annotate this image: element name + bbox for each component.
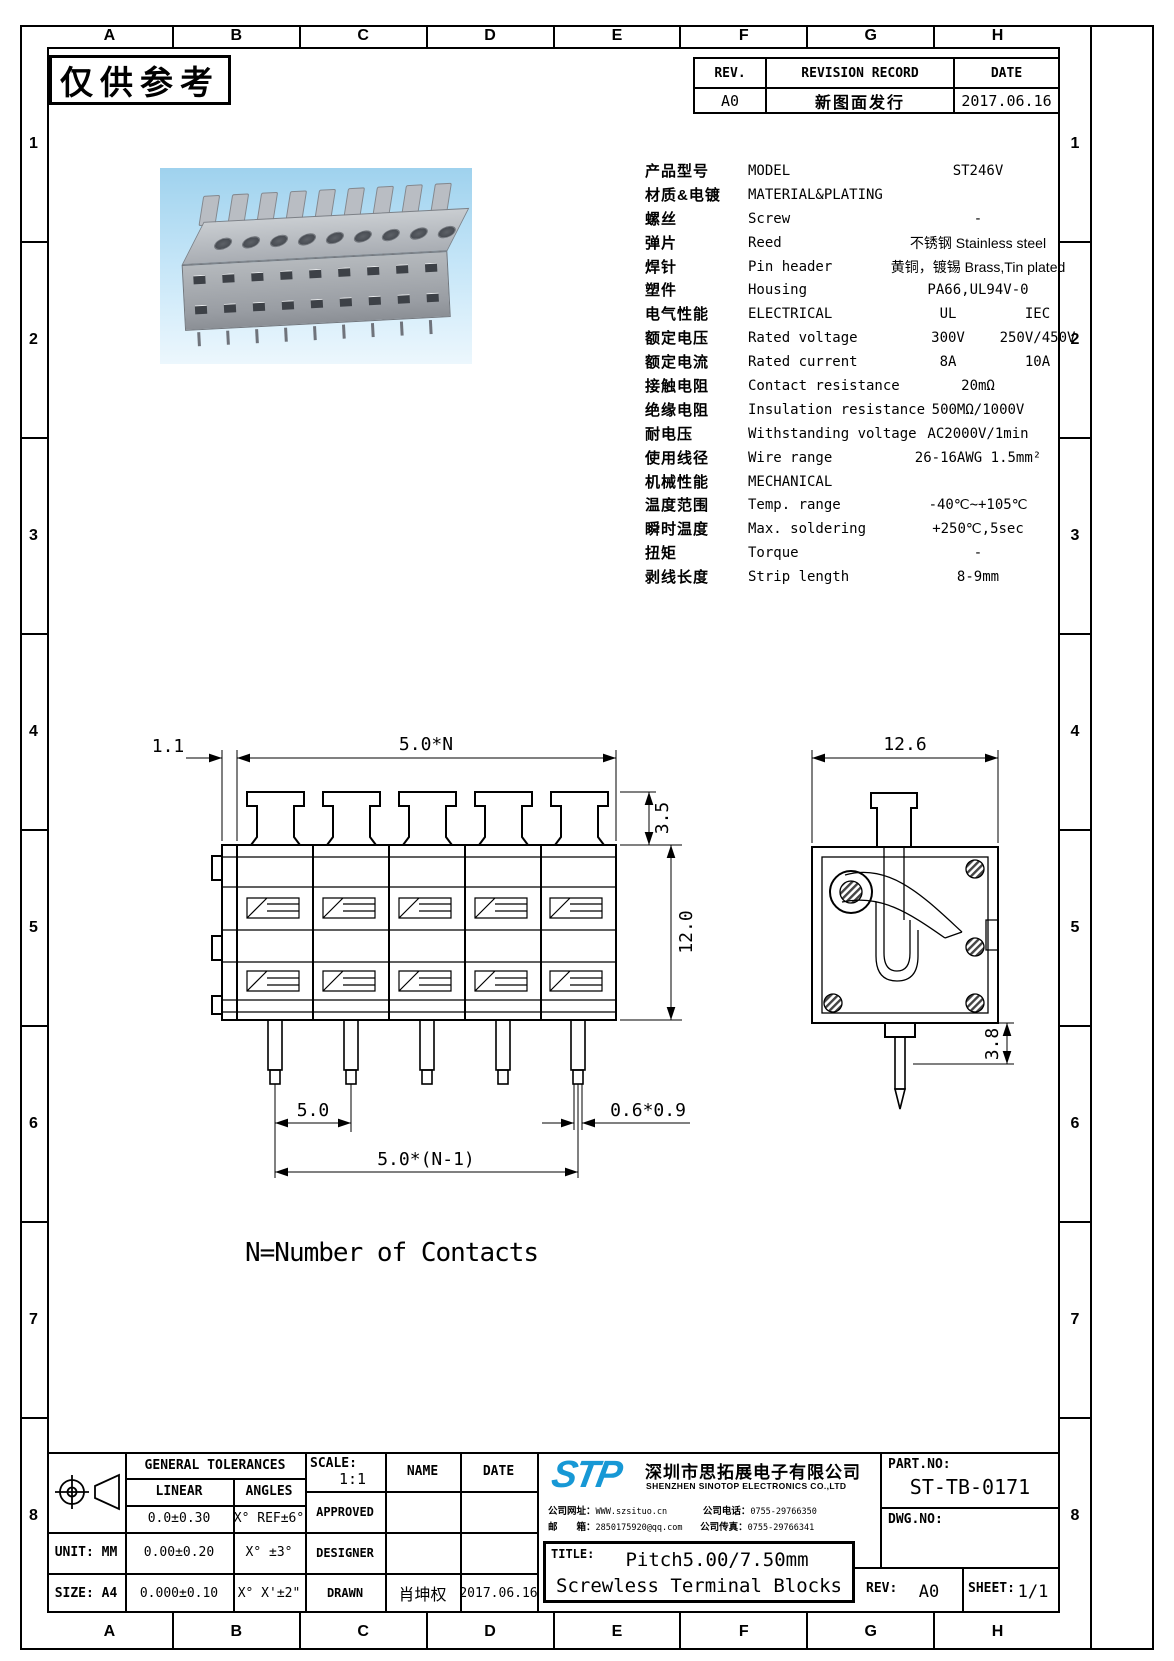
title-line2: Screwless Terminal Blocks: [546, 1575, 852, 1597]
spec-label-en: Strip length: [748, 566, 849, 590]
frame-columns-top: A B C D E F G H: [47, 25, 1060, 47]
frame-rows-left: 1 2 3 4 5 6 7 8: [20, 47, 47, 1613]
spec-label-cn: 电气性能: [645, 303, 747, 327]
spec-row: 绝缘电阻Insulation resistance500MΩ/1000V: [645, 399, 1093, 423]
dim-label: 12.0: [676, 910, 697, 953]
company-tel-label: 公司电话：: [703, 1506, 751, 1517]
title-box: TITLE: Pitch5.00/7.50mm Screwless Termin…: [543, 1541, 855, 1603]
frame-row-number: 5: [20, 831, 47, 1027]
spec-label-cn: 瞬时温度: [645, 518, 747, 542]
frame-col-letter: A: [47, 25, 174, 47]
spec-value: -40℃~+105℃: [863, 494, 1093, 518]
spec-row: 接触电阻Contact resistance20mΩ: [645, 375, 1093, 399]
company-name-en: SHENZHEN SINOTOP ELECTRONICS CO.,LTD: [646, 1481, 846, 1491]
spec-row: 机械性能MECHANICAL: [645, 471, 1093, 495]
spec-value-iec: 10A: [985, 351, 1090, 375]
spec-row: 材质&电镀MATERIAL&PLATING: [645, 184, 1093, 208]
dwgno-label: DWG.NO:: [888, 1512, 943, 1527]
spec-label-en: ELECTRICAL: [748, 303, 832, 327]
frame-col-letter: D: [428, 25, 555, 47]
company-contacts: 公司网址：WWW.szsituo.cn 公司电话：0755-29766350 邮…: [548, 1501, 878, 1533]
spec-value-iec: IEC: [985, 303, 1090, 327]
company-mail-label: 邮 箱：: [548, 1522, 596, 1533]
spec-value: 500MΩ/1000V: [863, 399, 1093, 423]
spec-label-cn: 剥线长度: [645, 566, 747, 590]
spec-row: 温度范围Temp. range-40℃~+105℃: [645, 494, 1093, 518]
spec-value: -: [863, 542, 1093, 566]
revision-date: 2017.06.16: [953, 87, 1058, 113]
frame-col-letter: C: [301, 1613, 428, 1650]
partno-label: PART.NO:: [888, 1457, 951, 1472]
spec-value-ul: 300V: [900, 327, 996, 351]
spec-row: 螺丝Screw-: [645, 208, 1093, 232]
dim-label: 0.6*0.9: [610, 1100, 686, 1121]
spec-label-cn: 螺丝: [645, 208, 747, 232]
spec-value: 20mΩ: [863, 375, 1093, 399]
frame-col-letter: B: [174, 25, 301, 47]
frame-col-letter: G: [808, 1613, 935, 1650]
frame-row-number: 5: [1060, 831, 1090, 1027]
revision-col-rev: REV.: [695, 59, 765, 87]
spec-row: 扭矩Torque-: [645, 542, 1093, 566]
frame-row-number: 8: [1060, 1419, 1090, 1613]
revision-record: 新图面发行: [765, 87, 953, 113]
dimension-drawings: 1.1 5.0*N 3.5 12.0 5.0 5.0*(N-1) 0.6*0.9…: [140, 690, 1020, 1235]
drawing-sheet: A B C D E F G H A B C D E F G H 1 2 3 4 …: [0, 0, 1174, 1661]
spec-label-en: MECHANICAL: [748, 471, 832, 495]
frame-col-letter: G: [808, 25, 935, 47]
spec-value: -: [863, 208, 1093, 232]
spec-row: 弹片Reed不锈钢 Stainless steel: [645, 232, 1093, 256]
titleblock-line: [855, 1567, 1060, 1569]
spec-label-cn: 扭矩: [645, 542, 747, 566]
company-mail: 2850175920@qq.com: [596, 1523, 683, 1533]
spec-label-en: Rated current: [748, 351, 858, 375]
spec-label-en: Screw: [748, 208, 790, 232]
frame-row-number: 6: [1060, 1027, 1090, 1223]
spec-label-cn: 绝缘电阻: [645, 399, 747, 423]
date-header: DATE: [460, 1452, 537, 1491]
spec-row: 焊针Pin header黄铜，镀锡 Brass,Tin plated: [645, 256, 1093, 280]
drawn-name: 肖坤权: [385, 1573, 460, 1613]
titleblock-line: [962, 1567, 964, 1613]
spec-row: 使用线径Wire range26-16AWG 1.5mm²: [645, 447, 1093, 471]
spec-value: 不锈钢 Stainless steel: [863, 232, 1093, 256]
spec-label-cn: 耐电压: [645, 423, 747, 447]
frame-row-number: 8: [20, 1419, 47, 1613]
housing-front: [182, 251, 451, 331]
spec-label-cn: 接触电阻: [645, 375, 747, 399]
spec-label-en: Pin header: [748, 256, 832, 280]
product-photo: [160, 168, 472, 364]
dim-label: 1.1: [152, 736, 185, 757]
tolerance-linear-3: 0.000±0.10: [125, 1573, 233, 1613]
spec-label-en: MODEL: [748, 160, 790, 184]
frame-col-letter: C: [301, 25, 428, 47]
frame-col-letter: H: [935, 1613, 1060, 1650]
titleblock-line: [880, 1452, 882, 1567]
dim-label: 3.5: [652, 802, 673, 835]
angles-header: ANGLES: [233, 1478, 305, 1505]
frame-row-number: 7: [20, 1223, 47, 1419]
spec-label-en: MATERIAL&PLATING: [748, 184, 883, 208]
company-fax-label: 公司传真：: [700, 1522, 748, 1533]
scale-value: 1:1: [320, 1468, 385, 1490]
frame-row-number: 3: [20, 439, 47, 635]
name-header: NAME: [385, 1452, 460, 1491]
frame-col-letter: F: [681, 1613, 808, 1650]
size-label: SIZE: A4: [47, 1573, 125, 1613]
revision-col-record: REVISION RECORD: [765, 59, 953, 87]
title-line1: Pitch5.00/7.50mm: [546, 1549, 852, 1571]
front-view-details: [222, 857, 616, 1012]
spec-label-cn: 机械性能: [645, 471, 747, 495]
tolerance-angle-3: X° X'±2": [233, 1573, 305, 1613]
company-name-cn: 深圳市思拓展电子有限公司: [645, 1458, 861, 1483]
linear-header: LINEAR: [125, 1478, 233, 1505]
rev-label: REV:: [866, 1581, 897, 1596]
frame-col-letter: E: [555, 1613, 682, 1650]
frame-row-number: 4: [20, 635, 47, 831]
frame-row-number: 7: [1060, 1223, 1090, 1419]
spec-label-cn: 材质&电镀: [645, 184, 747, 208]
revision-col-date: DATE: [953, 59, 1058, 87]
company-logo: STP: [548, 1454, 623, 1497]
spec-label-cn: 额定电流: [645, 351, 747, 375]
company-web: WWW.szsituo.cn: [596, 1507, 668, 1517]
spec-row: 电气性能ELECTRICALULIEC: [645, 303, 1093, 327]
spec-label-cn: 塑件: [645, 279, 747, 303]
spec-label-cn: 温度范围: [645, 494, 747, 518]
spec-label-cn: 使用线径: [645, 447, 747, 471]
spec-label-en: Wire range: [748, 447, 832, 471]
spec-label-en: Max. soldering: [748, 518, 866, 542]
sheet-value: 1/1: [1008, 1574, 1058, 1610]
tolerance-linear-2: 0.00±0.20: [125, 1532, 233, 1573]
titleblock-line: [880, 1507, 1060, 1509]
side-view-details: [822, 847, 998, 1109]
spec-value: AC2000V/1min: [863, 423, 1093, 447]
frame-col-letter: D: [428, 1613, 555, 1650]
spec-value: 黄铜，镀锡 Brass,Tin plated: [863, 256, 1093, 280]
tolerance-angle-2: X° ±3°: [233, 1532, 305, 1573]
drawn-date: 2017.06.16: [460, 1573, 537, 1613]
partno-value: ST-TB-0171: [880, 1472, 1060, 1502]
frame-columns-bottom: A B C D E F G H: [47, 1613, 1060, 1650]
spec-row: 塑件HousingPA66,UL94V-0: [645, 279, 1093, 303]
spec-row: 额定电压Rated voltage300V250V/450V: [645, 327, 1093, 351]
unit-label: UNIT: MM: [47, 1532, 125, 1573]
spec-label-en: Housing: [748, 279, 807, 303]
revision-table: REV. REVISION RECORD DATE A0 新图面发行 2017.…: [693, 57, 1060, 114]
dim-label: 5.0*(N-1): [377, 1149, 475, 1170]
dim-label: 12.6: [883, 734, 926, 755]
spec-value: +250℃,5sec: [863, 518, 1093, 542]
dim-label: 3.8: [982, 1028, 1003, 1061]
spec-value: 8-9mm: [863, 566, 1093, 590]
general-tolerances-header: GENERAL TOLERANCES: [125, 1452, 305, 1478]
reference-only-stamp: 仅供参考: [49, 55, 231, 105]
company-web-label: 公司网址：: [548, 1506, 596, 1517]
frame-col-letter: F: [681, 25, 808, 47]
frame-row-number: 1: [20, 47, 47, 243]
tolerance-linear-1: 0.0±0.30: [125, 1505, 233, 1532]
dim-label: 5.0*N: [399, 734, 453, 755]
spec-label-cn: 额定电压: [645, 327, 747, 351]
spec-value-iec: 250V/450V: [985, 327, 1090, 351]
spec-row: 额定电流Rated current8A10A: [645, 351, 1093, 375]
spec-label-en: Temp. range: [748, 494, 841, 518]
frame-col-letter: H: [935, 25, 1060, 47]
company-fax: 0755-29766341: [748, 1523, 815, 1533]
spec-value: 26-16AWG 1.5mm²: [863, 447, 1093, 471]
spec-label-cn: 产品型号: [645, 160, 747, 184]
company-tel: 0755-29766350: [750, 1507, 817, 1517]
frame-col-letter: B: [174, 1613, 301, 1650]
spec-row: 瞬时温度Max. soldering+250℃,5sec: [645, 518, 1093, 542]
spec-row: 剥线长度Strip length8-9mm: [645, 566, 1093, 590]
spec-label-en: Reed: [748, 232, 782, 256]
spec-label-en: Torque: [748, 542, 799, 566]
frame-row-number: 6: [20, 1027, 47, 1223]
spec-value-ul: 8A: [900, 351, 996, 375]
terminal-block-image: [172, 183, 460, 353]
revision-rev: A0: [695, 87, 765, 113]
frame-col-letter: E: [555, 25, 682, 47]
approved-label: APPROVED: [305, 1491, 385, 1532]
spec-value: PA66,UL94V-0: [863, 279, 1093, 303]
drawn-label: DRAWN: [305, 1573, 385, 1613]
projection-symbol-icon: [55, 1460, 125, 1524]
dimension-labels: 1.1 5.0*N 3.5 12.0 5.0 5.0*(N-1) 0.6*0.9…: [152, 734, 1003, 1170]
spec-value-ul: UL: [900, 303, 996, 327]
frame-col-letter: A: [47, 1613, 174, 1650]
frame-row-number: 2: [20, 243, 47, 439]
rev-value: A0: [898, 1574, 960, 1610]
contacts-note: N=Number of Contacts: [245, 1238, 538, 1268]
designer-label: DESIGNER: [305, 1532, 385, 1573]
tolerance-angle-1: X° REF±6°: [233, 1505, 305, 1532]
spec-value: ST246V: [863, 160, 1093, 184]
spec-label-cn: 弹片: [645, 232, 747, 256]
spec-label-en: Rated voltage: [748, 327, 858, 351]
spec-label-cn: 焊针: [645, 256, 747, 280]
dim-label: 5.0: [297, 1100, 330, 1121]
spec-row: 耐电压Withstanding voltageAC2000V/1min: [645, 423, 1093, 447]
front-view-pins: [268, 1020, 585, 1084]
spec-table: 产品型号MODELST246V 材质&电镀MATERIAL&PLATING 螺丝…: [645, 160, 1093, 590]
spec-row: 产品型号MODELST246V: [645, 160, 1093, 184]
frame-row-number: 4: [1060, 635, 1090, 831]
